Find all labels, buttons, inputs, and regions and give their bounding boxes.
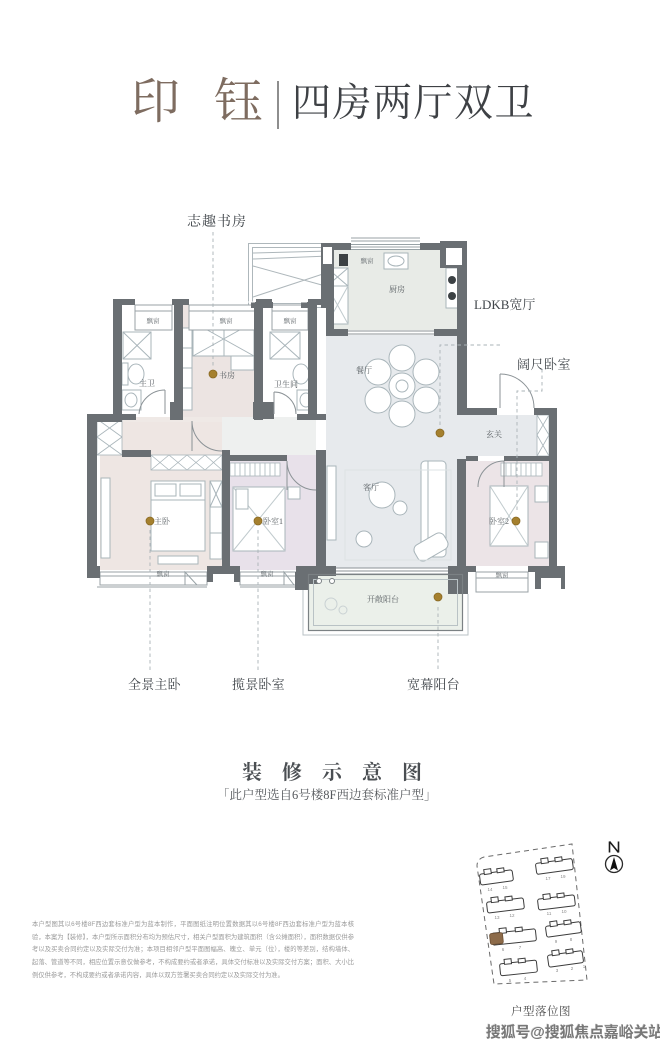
svg-text:主卫: 主卫	[139, 378, 155, 388]
svg-text:飘窗: 飘窗	[261, 569, 275, 578]
svg-text:餐厅: 餐厅	[356, 365, 372, 375]
svg-text:19: 19	[560, 874, 566, 879]
svg-text:玄关: 玄关	[486, 429, 502, 439]
svg-text:飘窗: 飘窗	[284, 316, 298, 325]
svg-text:书房: 书房	[219, 370, 235, 380]
svg-text:15: 15	[502, 885, 508, 890]
svg-text:卧室2: 卧室2	[489, 516, 509, 526]
svg-text:6: 6	[502, 947, 505, 952]
svg-text:飘窗: 飘窗	[157, 569, 171, 578]
svg-text:飘窗: 飘窗	[496, 570, 510, 579]
svg-text:17: 17	[545, 876, 551, 881]
svg-text:5: 5	[509, 978, 512, 983]
svg-text:飘窗: 飘窗	[220, 316, 234, 325]
svg-text:厨房: 厨房	[389, 284, 405, 294]
svg-text:11: 11	[547, 911, 552, 916]
svg-text:飘窗: 飘窗	[361, 256, 375, 265]
svg-text:开敞阳台: 开敞阳台	[367, 594, 399, 604]
svg-text:10: 10	[561, 909, 567, 914]
svg-text:卧室1: 卧室1	[263, 516, 283, 526]
svg-text:卫生间: 卫生间	[274, 379, 298, 389]
svg-text:8: 8	[570, 937, 573, 942]
svg-text:14: 14	[487, 887, 493, 892]
svg-text:7: 7	[519, 945, 522, 950]
svg-text:9: 9	[555, 939, 558, 944]
svg-text:客厅: 客厅	[363, 482, 379, 492]
svg-text:2: 2	[571, 966, 574, 971]
svg-text:4: 4	[524, 976, 527, 981]
svg-text:13: 13	[494, 915, 500, 920]
svg-text:3: 3	[556, 968, 559, 973]
svg-text:飘窗: 飘窗	[147, 316, 161, 325]
svg-text:主卧: 主卧	[154, 516, 171, 526]
svg-text:12: 12	[509, 913, 515, 918]
